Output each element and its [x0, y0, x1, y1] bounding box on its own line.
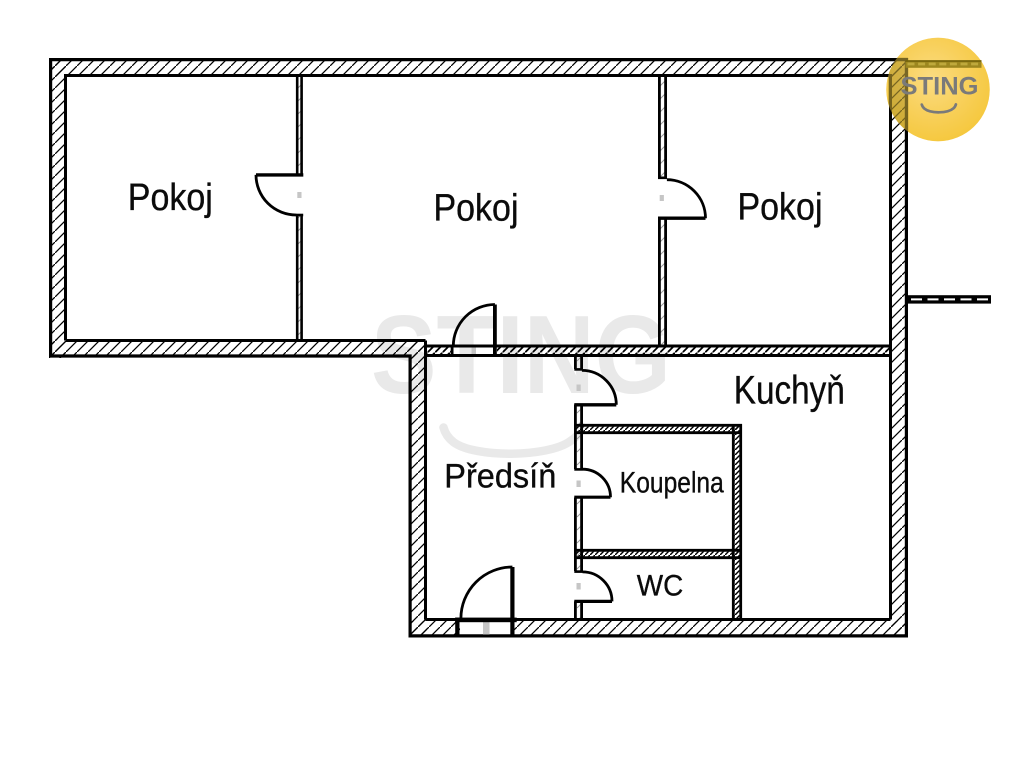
- svg-text:Kuchyň: Kuchyň: [734, 369, 845, 413]
- svg-text:Předsíň: Předsíň: [444, 458, 556, 496]
- svg-text:WC: WC: [637, 570, 684, 603]
- svg-text:Pokoj: Pokoj: [434, 187, 519, 229]
- svg-text:STING: STING: [901, 73, 979, 101]
- svg-text:Koupelna: Koupelna: [620, 467, 724, 500]
- svg-text:Pokoj: Pokoj: [738, 187, 823, 229]
- svg-text:Pokoj: Pokoj: [128, 177, 213, 219]
